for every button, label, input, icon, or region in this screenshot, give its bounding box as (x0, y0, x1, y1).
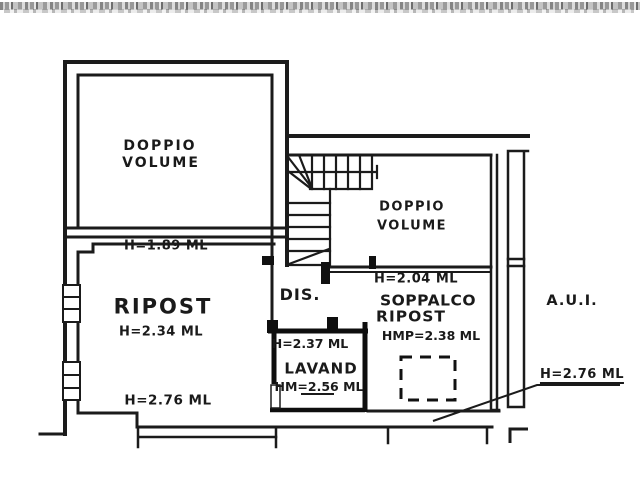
room-label-lavand: LAVAND (284, 362, 357, 377)
floorplan-drawing (0, 0, 640, 480)
height-note-soppalco-mean: HMP=2.38 ML (382, 330, 480, 343)
height-note-ripost-top: H=1.89 ML (124, 240, 208, 253)
height-note-lavand-top: H=2.37 ML (272, 338, 349, 351)
right-wall-bottom-return (510, 429, 528, 443)
height-note-aui: H=2.76 ML (540, 368, 624, 384)
inner-walls (40, 75, 499, 434)
door-stubs (262, 256, 376, 284)
area-label-aui: A.U.I. (546, 294, 597, 309)
room-label-soppalco-ripost: RIPOST (376, 309, 446, 325)
room-label-doppio-volume-upper-line1: DOPPIO (123, 139, 196, 153)
bottom-wall-details (138, 427, 487, 447)
height-note-lavand-mean: HM=2.56 ML (275, 381, 364, 394)
room-label-doppio-volume-upper-line2: VOLUME (122, 156, 200, 170)
room-label-doppio-volume-mezzanine-line2: VOLUME (377, 220, 447, 233)
window-symbol (63, 362, 80, 400)
floor-opening-dashed (401, 357, 455, 400)
room-label-doppio-volume-mezzanine-line1: DOPPIO (379, 201, 445, 214)
floorplan-page: DOPPIO VOLUME DOPPIO VOLUME H=1.89 ML RI… (0, 0, 640, 480)
leader-line (433, 385, 620, 421)
height-note-soppalco-top: H=2.04 ML (374, 273, 458, 286)
room-label-dis: DIS. (280, 287, 321, 303)
staircase (287, 155, 377, 265)
right-walls (491, 151, 528, 410)
height-note-ripost-bottom: H=2.76 ML (124, 394, 211, 408)
wall-pillar (327, 317, 338, 331)
room-label-ripost: RIPOST (114, 297, 213, 318)
window-symbol (63, 285, 80, 322)
wall-pillar (267, 320, 278, 333)
stair-direction-line (287, 166, 377, 178)
height-note-ripost-middle: H=2.34 ML (119, 326, 203, 339)
